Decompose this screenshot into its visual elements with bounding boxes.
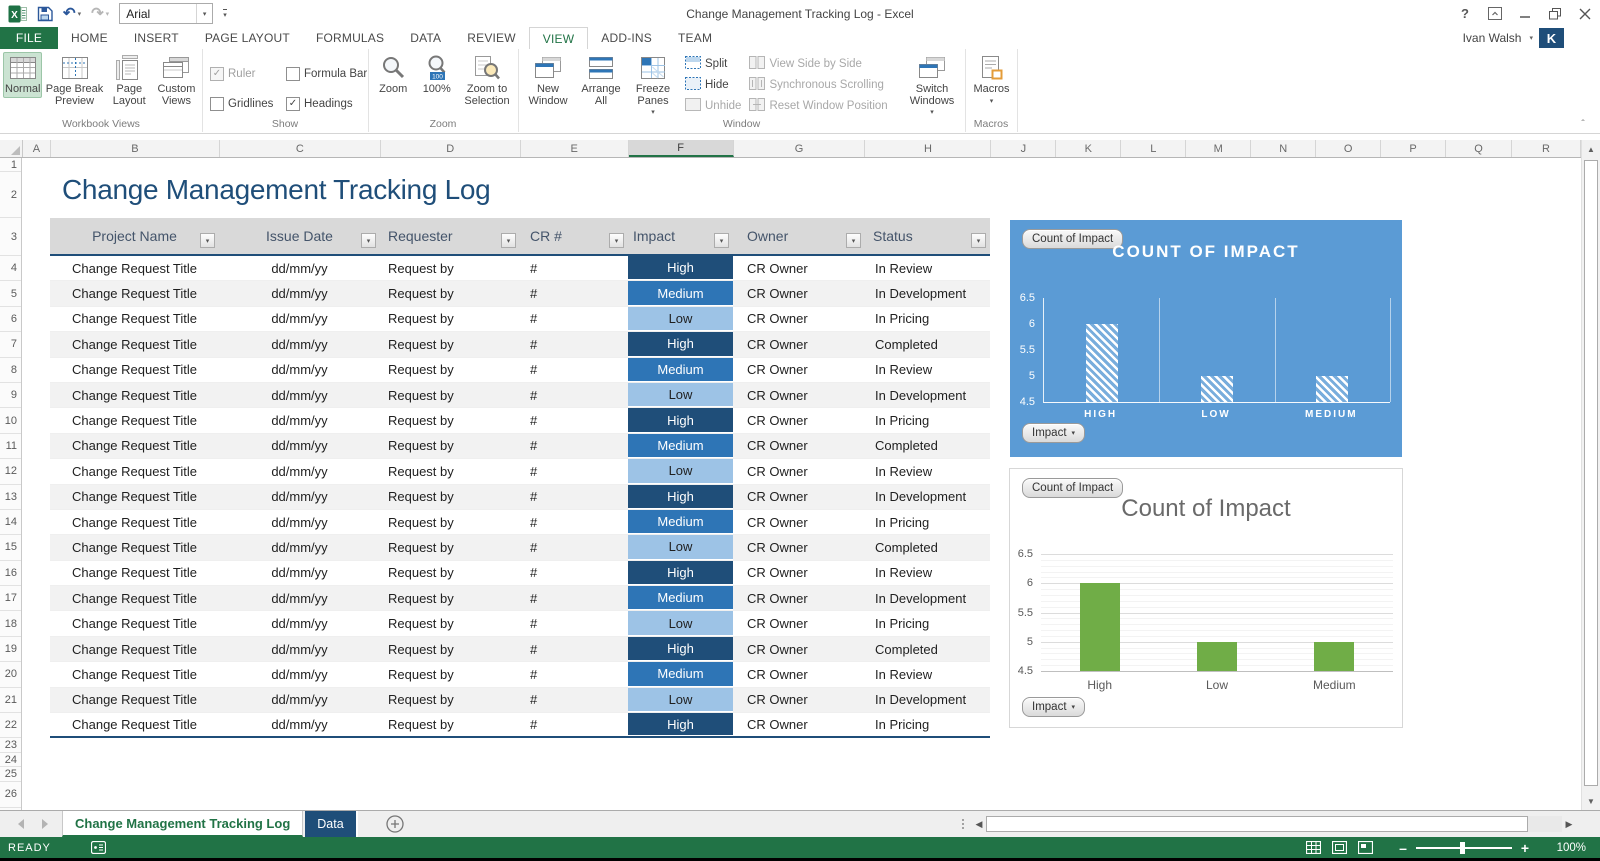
cell-impact-high[interactable]: High — [628, 637, 733, 661]
table-row[interactable]: Change Request Titledd/mm/yyRequest by#H… — [50, 713, 990, 738]
table-row[interactable]: Change Request Titledd/mm/yyRequest by#H… — [50, 332, 990, 357]
gridlines-checkbox-box[interactable] — [210, 97, 224, 111]
cell-owner[interactable]: CR Owner — [733, 434, 865, 458]
row-number-2[interactable]: 2 — [0, 172, 21, 218]
cell-cr[interactable]: # — [520, 586, 628, 610]
account-dropdown-caret[interactable]: ▾ — [1529, 34, 1533, 42]
horizontal-scrollbar-track[interactable] — [986, 816, 1562, 832]
ribbon-tab-view[interactable]: VIEW — [529, 27, 588, 49]
table-row[interactable]: Change Request Titledd/mm/yyRequest by#M… — [50, 358, 990, 383]
cell-requester[interactable]: Request by — [380, 332, 520, 356]
cell-owner[interactable]: CR Owner — [733, 662, 865, 686]
cell-project[interactable]: Change Request Title — [50, 358, 219, 382]
row-number-26[interactable]: 26 — [0, 782, 21, 808]
cell-date[interactable]: dd/mm/yy — [219, 510, 380, 534]
chart-bar-high[interactable] — [1080, 583, 1120, 671]
cell-project[interactable]: Change Request Title — [50, 586, 219, 610]
cell-project[interactable]: Change Request Title — [50, 510, 219, 534]
headings-checkbox[interactable]: ✓ Headings — [286, 89, 367, 119]
undo-button[interactable]: ↶▾ — [63, 6, 81, 21]
column-header-O[interactable]: O — [1316, 140, 1381, 157]
cell-requester[interactable]: Request by — [380, 510, 520, 534]
unhide-icon — [685, 98, 701, 114]
ribbon-display-options-button[interactable] — [1480, 0, 1510, 27]
cell-cr[interactable]: # — [520, 485, 628, 509]
cell-project[interactable]: Change Request Title — [50, 561, 219, 585]
cell-date[interactable]: dd/mm/yy — [219, 459, 380, 483]
cell-owner[interactable]: CR Owner — [733, 586, 865, 610]
page-break-preview-button[interactable]: Page Break Preview — [43, 52, 105, 109]
row-number-15[interactable]: 15 — [0, 535, 21, 560]
cell-owner[interactable]: CR Owner — [733, 485, 865, 509]
freeze-panes-dropdown-caret[interactable]: ▾ — [651, 107, 655, 119]
cell-owner[interactable]: CR Owner — [733, 332, 865, 356]
cell-requester[interactable]: Request by — [380, 586, 520, 610]
cell-impact-low[interactable]: Low — [628, 688, 733, 712]
cell-cr[interactable]: # — [520, 637, 628, 661]
cell-impact-medium[interactable]: Medium — [628, 510, 733, 534]
cell-project[interactable]: Change Request Title — [50, 485, 219, 509]
macro-record-icon[interactable] — [91, 841, 106, 854]
switch-windows-dropdown-caret[interactable]: ▾ — [930, 107, 934, 119]
column-header-impact[interactable]: Impact▾ — [628, 218, 733, 254]
scroll-left-icon[interactable]: ◀ — [972, 819, 986, 830]
row-number-21[interactable]: 21 — [0, 688, 21, 713]
count-of-impact-pivot-chart-white[interactable]: Count of ImpactCount of Impact4.555.566.… — [1009, 468, 1403, 728]
ribbon-tab-data[interactable]: DATA — [397, 27, 454, 49]
cell-project[interactable]: Change Request Title — [50, 383, 219, 407]
row-number-13[interactable]: 13 — [0, 485, 21, 510]
cell-impact-high[interactable]: High — [628, 485, 733, 509]
vertical-scrollbar-thumb[interactable] — [1584, 160, 1598, 786]
table-row[interactable]: Change Request Titledd/mm/yyRequest by#H… — [50, 408, 990, 433]
cell-status[interactable]: Completed — [865, 434, 990, 458]
row-number-4[interactable]: 4 — [0, 256, 21, 281]
vertical-scrollbar[interactable]: ▲ ▼ — [1581, 140, 1600, 810]
cell-cr[interactable]: # — [520, 611, 628, 635]
cell-impact-medium[interactable]: Medium — [628, 434, 733, 458]
column-header-A[interactable]: A — [23, 140, 51, 157]
zoom-slider-track[interactable] — [1416, 847, 1512, 849]
help-button[interactable]: ? — [1450, 0, 1480, 27]
zoom-level[interactable]: 100% — [1540, 842, 1586, 854]
row-number-9[interactable]: 9 — [0, 383, 21, 408]
cell-requester[interactable]: Request by — [380, 713, 520, 736]
cell-impact-medium[interactable]: Medium — [628, 662, 733, 686]
column-header-Q[interactable]: Q — [1446, 140, 1512, 157]
cell-requester[interactable]: Request by — [380, 561, 520, 585]
cell-requester[interactable]: Request by — [380, 535, 520, 559]
cell-impact-low[interactable]: Low — [628, 383, 733, 407]
zoom-100-button[interactable]: 100 100% — [416, 52, 457, 98]
custom-views-button[interactable]: Custom Views — [153, 52, 200, 109]
table-row[interactable]: Change Request Titledd/mm/yyRequest by#H… — [50, 485, 990, 510]
cell-date[interactable]: dd/mm/yy — [219, 485, 380, 509]
ribbon-tab-page-layout[interactable]: PAGE LAYOUT — [192, 27, 303, 49]
split-button[interactable]: Split — [685, 56, 741, 72]
close-button[interactable] — [1570, 0, 1600, 27]
cell-status[interactable]: Completed — [865, 637, 990, 661]
row-number-3[interactable]: 3 — [0, 218, 21, 256]
cell-cr[interactable]: # — [520, 408, 628, 432]
sheet-tab-tracking-log[interactable]: Change Management Tracking Log — [62, 811, 303, 837]
ribbon-tab-add-ins[interactable]: ADD-INS — [588, 27, 665, 49]
row-number-12[interactable]: 12 — [0, 459, 21, 484]
cell-project[interactable]: Change Request Title — [50, 459, 219, 483]
filter-button-impact[interactable]: ▾ — [714, 233, 729, 248]
cell-cr[interactable]: # — [520, 688, 628, 712]
cell-owner[interactable]: CR Owner — [733, 383, 865, 407]
ribbon-tab-team[interactable]: TEAM — [665, 27, 725, 49]
row-number-8[interactable]: 8 — [0, 358, 21, 383]
ribbon-tab-formulas[interactable]: FORMULAS — [303, 27, 397, 49]
row-number-17[interactable]: 17 — [0, 586, 21, 611]
cell-project[interactable]: Change Request Title — [50, 307, 219, 331]
column-header-L[interactable]: L — [1121, 140, 1186, 157]
table-row[interactable]: Change Request Titledd/mm/yyRequest by#M… — [50, 510, 990, 535]
cell-requester[interactable]: Request by — [380, 256, 520, 280]
column-header-project-name[interactable]: Project Name▾ — [50, 218, 219, 254]
cell-requester[interactable]: Request by — [380, 408, 520, 432]
cell-requester[interactable]: Request by — [380, 688, 520, 712]
headings-checkbox-box[interactable]: ✓ — [286, 97, 300, 111]
cell-project[interactable]: Change Request Title — [50, 611, 219, 635]
cell-requester[interactable]: Request by — [380, 434, 520, 458]
cell-requester[interactable]: Request by — [380, 662, 520, 686]
cell-status[interactable]: In Development — [865, 383, 990, 407]
cell-owner[interactable]: CR Owner — [733, 358, 865, 382]
cell-requester[interactable]: Request by — [380, 358, 520, 382]
table-row[interactable]: Change Request Titledd/mm/yyRequest by#L… — [50, 688, 990, 713]
column-header-N[interactable]: N — [1251, 140, 1316, 157]
new-window-button[interactable]: New Window — [521, 52, 575, 109]
horizontal-scrollbar[interactable]: ◀ ▶ — [972, 811, 1576, 837]
gridlines-checkbox[interactable]: Gridlines — [210, 89, 284, 119]
cell-owner[interactable]: CR Owner — [733, 535, 865, 559]
cell-date[interactable]: dd/mm/yy — [219, 688, 380, 712]
row-number-23[interactable]: 23 — [0, 738, 21, 753]
zoom-in-button[interactable]: + — [1516, 840, 1534, 856]
cell-status[interactable]: In Review — [865, 256, 990, 280]
count-of-impact-pivot-chart-blue[interactable]: Count of ImpactCOUNT OF IMPACT4.555.566.… — [1010, 220, 1402, 457]
arrange-all-button[interactable]: Arrange All — [576, 52, 626, 109]
cell-project[interactable]: Change Request Title — [50, 332, 219, 356]
column-header-K[interactable]: K — [1056, 140, 1121, 157]
cell-project[interactable]: Change Request Title — [50, 688, 219, 712]
cell-project[interactable]: Change Request Title — [50, 256, 219, 280]
cell-status[interactable]: In Development — [865, 688, 990, 712]
row-number-25[interactable]: 25 — [0, 767, 21, 782]
page-layout-view-button[interactable]: Page Layout — [107, 52, 152, 109]
collapse-ribbon-button[interactable]: ˆ — [1572, 116, 1594, 132]
cell-cr[interactable]: # — [520, 332, 628, 356]
cell-impact-high[interactable]: High — [628, 332, 733, 356]
tab-scrollbar-splitter[interactable] — [962, 811, 964, 837]
chart-title[interactable]: COUNT OF IMPACT — [1010, 242, 1402, 262]
select-all-corner[interactable] — [0, 140, 23, 157]
cell-cr[interactable]: # — [520, 434, 628, 458]
cell-project[interactable]: Change Request Title — [50, 662, 219, 686]
cell-impact-medium[interactable]: Medium — [628, 358, 733, 382]
switch-windows-button[interactable]: Switch Windows ▾ — [901, 52, 963, 121]
ribbon-tab-review[interactable]: REVIEW — [454, 27, 529, 49]
cell-owner[interactable]: CR Owner — [733, 307, 865, 331]
filter-button-project[interactable]: ▾ — [200, 233, 215, 248]
font-dropdown-caret[interactable]: ▾ — [196, 4, 212, 23]
cell-project[interactable]: Change Request Title — [50, 408, 219, 432]
redo-button[interactable]: ↷▾ — [91, 6, 109, 21]
table-row[interactable]: Change Request Titledd/mm/yyRequest by#L… — [50, 383, 990, 408]
sheet-nav-forward-icon[interactable] — [42, 819, 48, 829]
ribbon-tab-file[interactable]: FILE — [0, 27, 58, 49]
page-layout-view-shortcut[interactable] — [1326, 841, 1352, 854]
cell-status[interactable]: In Review — [865, 561, 990, 585]
cell-cr[interactable]: # — [520, 307, 628, 331]
cell-status[interactable]: In Development — [865, 586, 990, 610]
table-row[interactable]: Change Request Titledd/mm/yyRequest by#L… — [50, 459, 990, 484]
cell-date[interactable]: dd/mm/yy — [219, 307, 380, 331]
cell-impact-high[interactable]: High — [628, 256, 733, 280]
cell-status[interactable]: In Pricing — [865, 713, 990, 736]
pivot-axis-button-impact[interactable]: Impact▾ — [1022, 697, 1085, 717]
chart-bar-medium[interactable] — [1314, 642, 1354, 671]
cell-owner[interactable]: CR Owner — [733, 510, 865, 534]
sheet-tab-data[interactable]: Data — [305, 811, 357, 837]
column-header-cr-[interactable]: CR #▾ — [520, 218, 628, 254]
sheet-area[interactable]: 1234567891011121314151617181920212223242… — [0, 158, 1581, 810]
table-row[interactable]: Change Request Titledd/mm/yyRequest by#L… — [50, 307, 990, 332]
cell-project[interactable]: Change Request Title — [50, 535, 219, 559]
chart-bar-low[interactable] — [1197, 642, 1237, 671]
cell-status[interactable]: In Development — [865, 485, 990, 509]
column-header-M[interactable]: M — [1186, 140, 1251, 157]
column-header-owner[interactable]: Owner▾ — [733, 218, 865, 254]
filter-button-cr[interactable]: ▾ — [609, 233, 624, 248]
cell-project[interactable]: Change Request Title — [50, 637, 219, 661]
cell-date[interactable]: dd/mm/yy — [219, 662, 380, 686]
chart-title[interactable]: Count of Impact — [1010, 495, 1402, 523]
cell-cr[interactable]: # — [520, 561, 628, 585]
ribbon-tab-home[interactable]: HOME — [58, 27, 121, 49]
cell-date[interactable]: dd/mm/yy — [219, 535, 380, 559]
font-name-combobox[interactable]: Arial ▾ — [119, 3, 213, 24]
cell-impact-low[interactable]: Low — [628, 535, 733, 559]
scroll-right-icon[interactable]: ▶ — [1562, 819, 1576, 830]
column-header-H[interactable]: H — [865, 140, 991, 157]
row-number-11[interactable]: 11 — [0, 434, 21, 459]
cell-date[interactable]: dd/mm/yy — [219, 561, 380, 585]
account-area[interactable]: Ivan Walsh ▾ K — [1463, 27, 1564, 49]
macros-button[interactable]: Macros ▾ — [968, 52, 1015, 109]
cell-impact-medium[interactable]: Medium — [628, 281, 733, 305]
cell-impact-high[interactable]: High — [628, 713, 733, 736]
scroll-up-icon[interactable]: ▲ — [1582, 140, 1600, 158]
avatar[interactable]: K — [1539, 28, 1564, 48]
scroll-down-icon[interactable]: ▼ — [1582, 792, 1600, 810]
cell-cr[interactable]: # — [520, 510, 628, 534]
table-row[interactable]: Change Request Titledd/mm/yyRequest by#M… — [50, 662, 990, 687]
row-number-14[interactable]: 14 — [0, 510, 21, 535]
macros-dropdown-caret[interactable]: ▾ — [990, 96, 994, 108]
filter-button-status[interactable]: ▾ — [971, 233, 986, 248]
column-header-J[interactable]: J — [991, 140, 1056, 157]
column-header-B[interactable]: B — [51, 140, 220, 157]
row-number-20[interactable]: 20 — [0, 662, 21, 687]
table-row[interactable]: Change Request Titledd/mm/yyRequest by#L… — [50, 535, 990, 560]
customize-qat-button[interactable]: ▾ — [223, 9, 227, 19]
undo-dropdown-caret[interactable]: ▾ — [78, 10, 82, 18]
row-number-5[interactable]: 5 — [0, 281, 21, 306]
cell-date[interactable]: dd/mm/yy — [219, 281, 380, 305]
row-number-19[interactable]: 19 — [0, 637, 21, 662]
cell-owner[interactable]: CR Owner — [733, 561, 865, 585]
row-number-10[interactable]: 10 — [0, 408, 21, 433]
horizontal-scrollbar-thumb[interactable] — [986, 816, 1528, 832]
cell-cr[interactable]: # — [520, 281, 628, 305]
cell-requester[interactable]: Request by — [380, 383, 520, 407]
row-number-16[interactable]: 16 — [0, 561, 21, 586]
restore-button[interactable] — [1540, 0, 1570, 27]
row-number-6[interactable]: 6 — [0, 307, 21, 332]
filter-button-date[interactable]: ▾ — [361, 233, 376, 248]
cell-cr[interactable]: # — [520, 358, 628, 382]
formula-bar-checkbox-box[interactable] — [286, 67, 300, 81]
cell-owner[interactable]: CR Owner — [733, 611, 865, 635]
pivot-axis-button-impact[interactable]: Impact▾ — [1022, 423, 1085, 443]
column-header-status[interactable]: Status▾ — [865, 218, 990, 254]
cell-date[interactable]: dd/mm/yy — [219, 383, 380, 407]
cell-cr[interactable]: # — [520, 459, 628, 483]
row-number-22[interactable]: 22 — [0, 713, 21, 738]
cell-impact-low[interactable]: Low — [628, 307, 733, 331]
cell-project[interactable]: Change Request Title — [50, 713, 219, 736]
cell-project[interactable]: Change Request Title — [50, 281, 219, 305]
cell-date[interactable]: dd/mm/yy — [219, 256, 380, 280]
table-row[interactable]: Change Request Titledd/mm/yyRequest by#H… — [50, 561, 990, 586]
table-row[interactable]: Change Request Titledd/mm/yyRequest by#H… — [50, 256, 990, 281]
table-row[interactable]: Change Request Titledd/mm/yyRequest by#H… — [50, 637, 990, 662]
cell-date[interactable]: dd/mm/yy — [219, 358, 380, 382]
page-break-preview-shortcut[interactable] — [1352, 841, 1378, 854]
filter-button-requester[interactable]: ▾ — [501, 233, 516, 248]
cell-impact-low[interactable]: Low — [628, 611, 733, 635]
cell-owner[interactable]: CR Owner — [733, 459, 865, 483]
cell-status[interactable]: Completed — [865, 332, 990, 356]
cell-status[interactable]: In Pricing — [865, 510, 990, 534]
normal-view-icon — [9, 54, 37, 82]
cell-status[interactable]: In Review — [865, 459, 990, 483]
cell-status[interactable]: In Pricing — [865, 611, 990, 635]
formula-bar-checkbox[interactable]: Formula Bar — [286, 59, 367, 89]
cell-owner[interactable]: CR Owner — [733, 408, 865, 432]
cell-impact-medium[interactable]: Medium — [628, 586, 733, 610]
cell-requester[interactable]: Request by — [380, 459, 520, 483]
zoom-slider-thumb[interactable] — [1460, 842, 1465, 854]
cell-cr[interactable]: # — [520, 256, 628, 280]
column-header-issue-date[interactable]: Issue Date▾ — [219, 218, 380, 254]
table-row[interactable]: Change Request Titledd/mm/yyRequest by#M… — [50, 281, 990, 306]
cell-status[interactable]: In Pricing — [865, 307, 990, 331]
chart-bar-low[interactable] — [1201, 376, 1233, 402]
cell-status[interactable]: In Review — [865, 662, 990, 686]
cell-date[interactable]: dd/mm/yy — [219, 408, 380, 432]
normal-view-button[interactable]: Normal — [3, 52, 42, 98]
cell-status[interactable]: In Pricing — [865, 408, 990, 432]
cell-owner[interactable]: CR Owner — [733, 281, 865, 305]
cell-owner[interactable]: CR Owner — [733, 713, 865, 736]
cell-requester[interactable]: Request by — [380, 611, 520, 635]
chart-bar-medium[interactable] — [1316, 376, 1348, 402]
minimize-button[interactable] — [1510, 0, 1540, 27]
hide-button[interactable]: Hide — [685, 77, 741, 93]
column-header-E[interactable]: E — [521, 140, 629, 157]
column-header-P[interactable]: P — [1381, 140, 1446, 157]
row-number-24[interactable]: 24 — [0, 753, 21, 768]
cell-date[interactable]: dd/mm/yy — [219, 434, 380, 458]
cell-owner[interactable]: CR Owner — [733, 637, 865, 661]
ribbon-tab-insert[interactable]: INSERT — [121, 27, 192, 49]
cell-requester[interactable]: Request by — [380, 485, 520, 509]
table-row[interactable]: Change Request Titledd/mm/yyRequest by#L… — [50, 611, 990, 636]
table-row[interactable]: Change Request Titledd/mm/yyRequest by#M… — [50, 434, 990, 459]
row-number-18[interactable]: 18 — [0, 611, 21, 636]
cell-impact-low[interactable]: Low — [628, 459, 733, 483]
cell-owner[interactable]: CR Owner — [733, 688, 865, 712]
zoom-out-button[interactable]: – — [1394, 840, 1412, 856]
cell-status[interactable]: In Review — [865, 358, 990, 382]
cell-impact-high[interactable]: High — [628, 408, 733, 432]
filter-button-owner[interactable]: ▾ — [846, 233, 861, 248]
cell-cr[interactable]: # — [520, 662, 628, 686]
cell-owner[interactable]: CR Owner — [733, 256, 865, 280]
cell-date[interactable]: dd/mm/yy — [219, 586, 380, 610]
cell-date[interactable]: dd/mm/yy — [219, 713, 380, 736]
freeze-panes-button[interactable]: Freeze Panes ▾ — [627, 52, 679, 121]
column-header-C[interactable]: C — [220, 140, 381, 157]
column-header-D[interactable]: D — [381, 140, 521, 157]
cell-requester[interactable]: Request by — [380, 281, 520, 305]
column-header-G[interactable]: G — [734, 140, 866, 157]
cell-cr[interactable]: # — [520, 713, 628, 736]
cell-status[interactable]: Completed — [865, 535, 990, 559]
save-button[interactable] — [37, 6, 53, 22]
cell-impact-high[interactable]: High — [628, 561, 733, 585]
cell-project[interactable]: Change Request Title — [50, 434, 219, 458]
cell-status[interactable]: In Development — [865, 281, 990, 305]
cell-requester[interactable]: Request by — [380, 307, 520, 331]
chart-plot-area — [1041, 554, 1393, 671]
zoom-slider[interactable]: – + — [1394, 840, 1534, 856]
cell-cr[interactable]: # — [520, 535, 628, 559]
new-sheet-button[interactable] — [386, 811, 404, 837]
cell-date[interactable]: dd/mm/yy — [219, 611, 380, 635]
sheet-nav-back-icon[interactable] — [18, 819, 24, 829]
zoom-to-selection-button[interactable]: Zoom to Selection — [458, 52, 516, 109]
normal-view-shortcut[interactable] — [1300, 841, 1326, 854]
column-header-R[interactable]: R — [1512, 140, 1581, 157]
cell-cr[interactable]: # — [520, 383, 628, 407]
cell-date[interactable]: dd/mm/yy — [219, 637, 380, 661]
zoom-button[interactable]: Zoom — [371, 52, 415, 98]
chart-bar-high[interactable] — [1086, 324, 1118, 402]
column-header-requester[interactable]: Requester▾ — [380, 218, 520, 254]
cell-requester[interactable]: Request by — [380, 637, 520, 661]
row-number-7[interactable]: 7 — [0, 332, 21, 357]
table-row[interactable]: Change Request Titledd/mm/yyRequest by#M… — [50, 586, 990, 611]
row-number-1[interactable]: 1 — [0, 158, 21, 172]
cell-date[interactable]: dd/mm/yy — [219, 332, 380, 356]
column-header-F[interactable]: F — [629, 140, 734, 157]
